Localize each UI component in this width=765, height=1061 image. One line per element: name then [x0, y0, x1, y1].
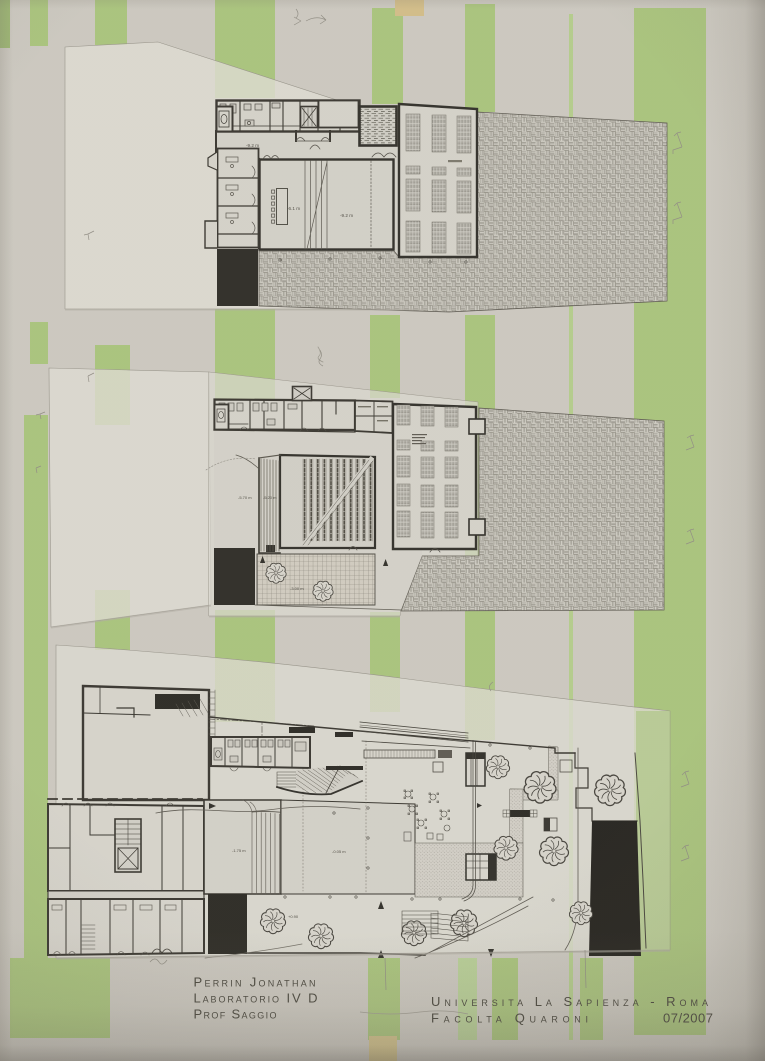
svg-text:-5.20 m: -5.20 m — [263, 495, 277, 500]
svg-text:Facolta Quaroni: Facolta Quaroni — [431, 1011, 588, 1026]
svg-text:-5.70 m: -5.70 m — [238, 495, 252, 500]
svg-text:Laboratorio IV D: Laboratorio IV D — [194, 991, 318, 1006]
svg-text:07/2007: 07/2007 — [663, 1011, 713, 1026]
svg-text:-1.75 m: -1.75 m — [232, 848, 246, 853]
svg-text:-9.2 m: -9.2 m — [340, 213, 353, 218]
svg-text:+0.90: +0.90 — [288, 914, 299, 919]
svg-text:-6.1 m: -6.1 m — [287, 206, 300, 211]
svg-text:-0.05 m: -0.05 m — [332, 849, 346, 854]
svg-text:Prof Saggio: Prof Saggio — [194, 1007, 277, 1022]
svg-text:Universita La Sapienza - Roma: Universita La Sapienza - Roma — [431, 994, 708, 1009]
svg-text:-3.00 m: -3.00 m — [290, 586, 304, 591]
svg-text:Perrin Jonathan: Perrin Jonathan — [194, 975, 316, 990]
svg-text:-9.2 m: -9.2 m — [246, 143, 259, 148]
